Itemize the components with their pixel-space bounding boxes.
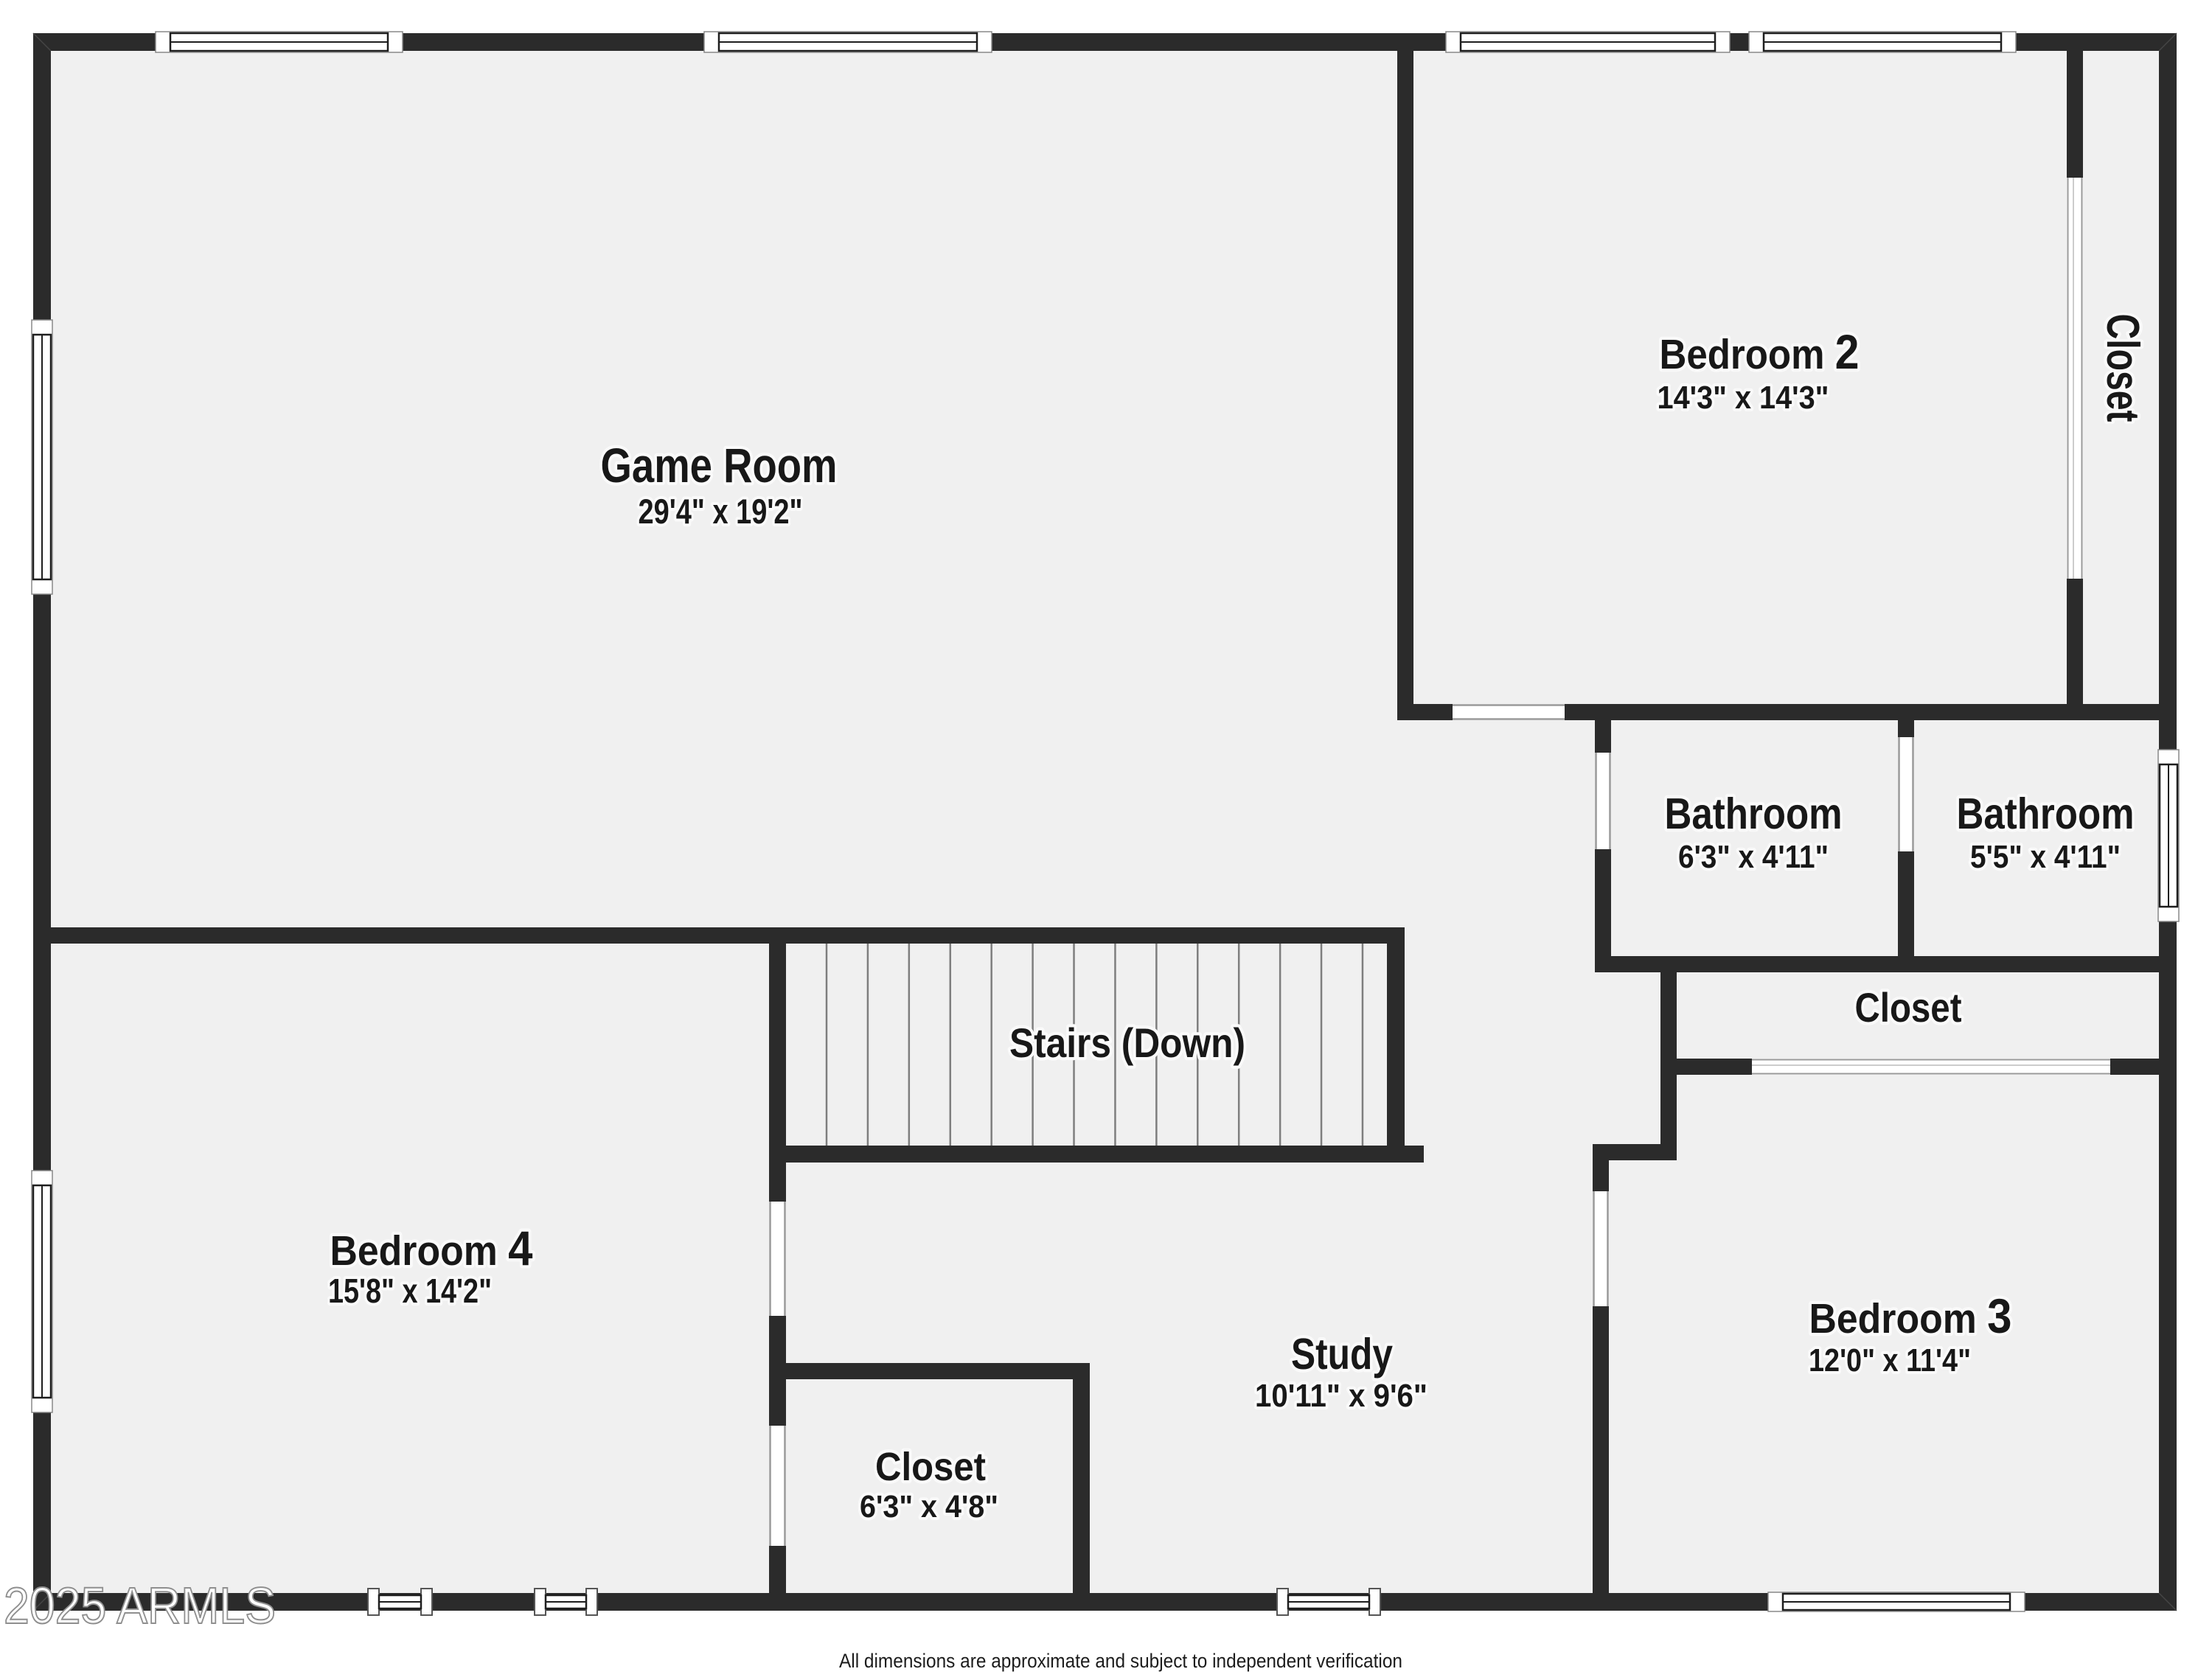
svg-text:6'3" x 4'8": 6'3" x 4'8"	[860, 1489, 998, 1524]
svg-text:Bathroom: Bathroom	[1957, 790, 2135, 838]
svg-text:Closet: Closet	[1855, 984, 1962, 1031]
svg-text:2025 ARMLS: 2025 ARMLS	[4, 1577, 276, 1634]
svg-text:14'3" x 14'3": 14'3" x 14'3"	[1658, 380, 1829, 416]
svg-text:12'0" x 11'4": 12'0" x 11'4"	[1809, 1342, 1971, 1378]
svg-text:Game Room: Game Room	[601, 438, 838, 492]
svg-text:15'8" x 14'2": 15'8" x 14'2"	[328, 1272, 492, 1310]
svg-text:10'11" x 9'6": 10'11" x 9'6"	[1255, 1378, 1427, 1414]
svg-text:All dimensions are approximate: All dimensions are approximate and subje…	[839, 1650, 1402, 1672]
svg-text:Bathroom: Bathroom	[1665, 790, 1843, 838]
svg-text:6'3" x 4'11": 6'3" x 4'11"	[1678, 839, 1829, 875]
svg-text:Closet: Closet	[875, 1445, 986, 1489]
svg-text:Bedroom 2: Bedroom 2	[1660, 324, 1860, 379]
svg-text:Closet: Closet	[2097, 314, 2148, 422]
svg-text:Stairs (Down): Stairs (Down)	[1009, 1019, 1245, 1066]
svg-text:Bedroom 4: Bedroom 4	[330, 1221, 533, 1275]
svg-text:5'5" x 4'11": 5'5" x 4'11"	[1970, 839, 2121, 875]
svg-text:Study: Study	[1291, 1330, 1393, 1378]
svg-text:Bedroom 3: Bedroom 3	[1809, 1289, 2012, 1343]
svg-text:29'4" x 19'2": 29'4" x 19'2"	[639, 492, 803, 531]
